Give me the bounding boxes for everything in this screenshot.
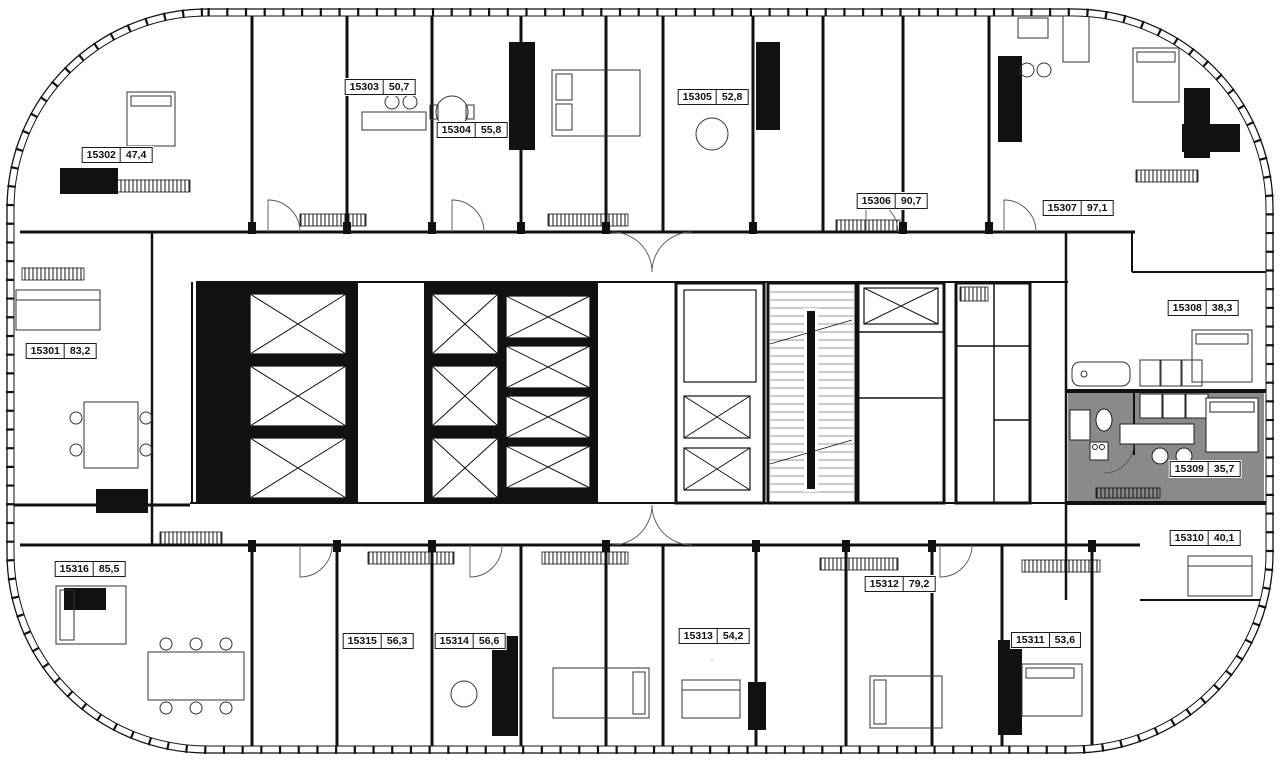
unit-area: 83,2 [65,344,95,358]
unit-label-15301[interactable]: 1530183,2 [26,343,97,359]
unit-area: 38,3 [1207,301,1237,315]
unit-area: 53,6 [1050,633,1080,647]
unit-label-15316[interactable]: 1531685,5 [55,561,126,577]
service-shafts [676,283,764,503]
elevator-bank-center [424,283,598,503]
unit-label-15313[interactable]: 1531354,2 [679,628,750,644]
unit-id: 15310 [1171,531,1209,545]
unit-area: 56,6 [474,634,504,648]
unit-label-15311[interactable]: 1531153,6 [1011,632,1081,648]
unit-label-15314[interactable]: 1531456,6 [435,633,506,649]
unit-id: 15303 [346,80,384,94]
floorplan-drawing [0,0,1280,762]
unit-id: 15312 [866,577,904,591]
unit-label-15312[interactable]: 1531279,2 [865,576,936,592]
unit-id: 15307 [1044,201,1082,215]
unit-id: 15313 [680,629,718,643]
unit-label-15305[interactable]: 1530552,8 [678,89,749,105]
unit-label-15308[interactable]: 1530838,3 [1168,300,1239,316]
unit-area: 97,1 [1082,201,1112,215]
unit-id: 15316 [56,562,94,576]
unit-label-15309[interactable]: 1530935,7 [1170,461,1241,477]
unit-label-15310[interactable]: 1531040,1 [1170,530,1241,546]
unit-id: 15309 [1171,462,1209,476]
unit-id: 15311 [1012,633,1050,647]
unit-label-15303[interactable]: 1530350,7 [345,79,416,95]
unit-area: 50,7 [384,80,414,94]
floorplan-canvas: 1530183,2 1530247,4 1530350,7 1530455,8 … [0,0,1280,762]
unit-area: 54,2 [718,629,748,643]
unit-label-15304[interactable]: 1530455,8 [437,122,508,138]
unit-area: 35,7 [1209,462,1239,476]
unit-id: 15314 [436,634,474,648]
unit-area: 56,3 [382,634,412,648]
unit-id: 15302 [83,148,121,162]
unit-id: 15304 [438,123,476,137]
core-right-rooms [858,283,1030,503]
unit-id: 15308 [1169,301,1207,315]
elevator-bank-left [196,283,358,503]
unit-label-15306[interactable]: 1530690,7 [857,193,928,209]
unit-id: 15305 [679,90,717,104]
unit-area: 40,1 [1209,531,1239,545]
unit-area: 55,8 [476,123,506,137]
unit-area: 52,8 [717,90,747,104]
unit-area: 85,5 [94,562,124,576]
unit-area: 90,7 [896,194,926,208]
unit-id: 15306 [858,194,896,208]
staircase-icon [768,283,856,503]
unit-area: 47,4 [121,148,151,162]
unit-id: 15315 [344,634,382,648]
unit-label-15302[interactable]: 1530247,4 [82,147,153,163]
unit-area: 79,2 [904,577,934,591]
unit-label-15315[interactable]: 1531556,3 [343,633,414,649]
unit-label-15307[interactable]: 1530797,1 [1043,200,1114,216]
unit-id: 15301 [27,344,65,358]
